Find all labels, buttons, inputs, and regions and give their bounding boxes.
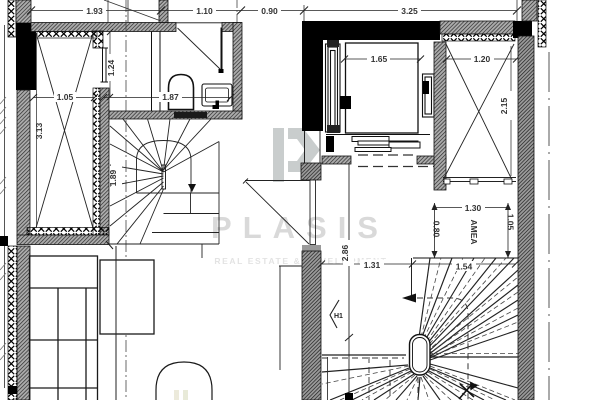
svg-text:1.93: 1.93 [86,6,103,16]
svg-text:1.05: 1.05 [506,214,516,231]
svg-text:1.05: 1.05 [57,92,74,102]
svg-text:PLASIS: PLASIS [211,210,389,245]
svg-text:0.80: 0.80 [432,221,442,238]
svg-text:1.10: 1.10 [196,6,213,16]
svg-text:ΑΜΕΑ: ΑΜΕΑ [469,219,479,244]
svg-text:0.90: 0.90 [261,6,278,16]
svg-text:1.54: 1.54 [456,262,473,272]
svg-text:1.31: 1.31 [364,260,381,270]
svg-text:1.87: 1.87 [162,92,179,102]
svg-text:3.13: 3.13 [34,122,44,139]
svg-text:1.24: 1.24 [106,59,116,76]
svg-text:Η1: Η1 [334,313,343,320]
svg-text:1.20: 1.20 [474,54,491,64]
svg-text:1.65: 1.65 [371,54,388,64]
svg-text:2.15: 2.15 [499,97,509,114]
svg-text:2.86: 2.86 [340,244,350,261]
svg-text:3.25: 3.25 [401,6,418,16]
svg-text:1.89: 1.89 [108,169,118,186]
svg-text:1.30: 1.30 [465,203,482,213]
